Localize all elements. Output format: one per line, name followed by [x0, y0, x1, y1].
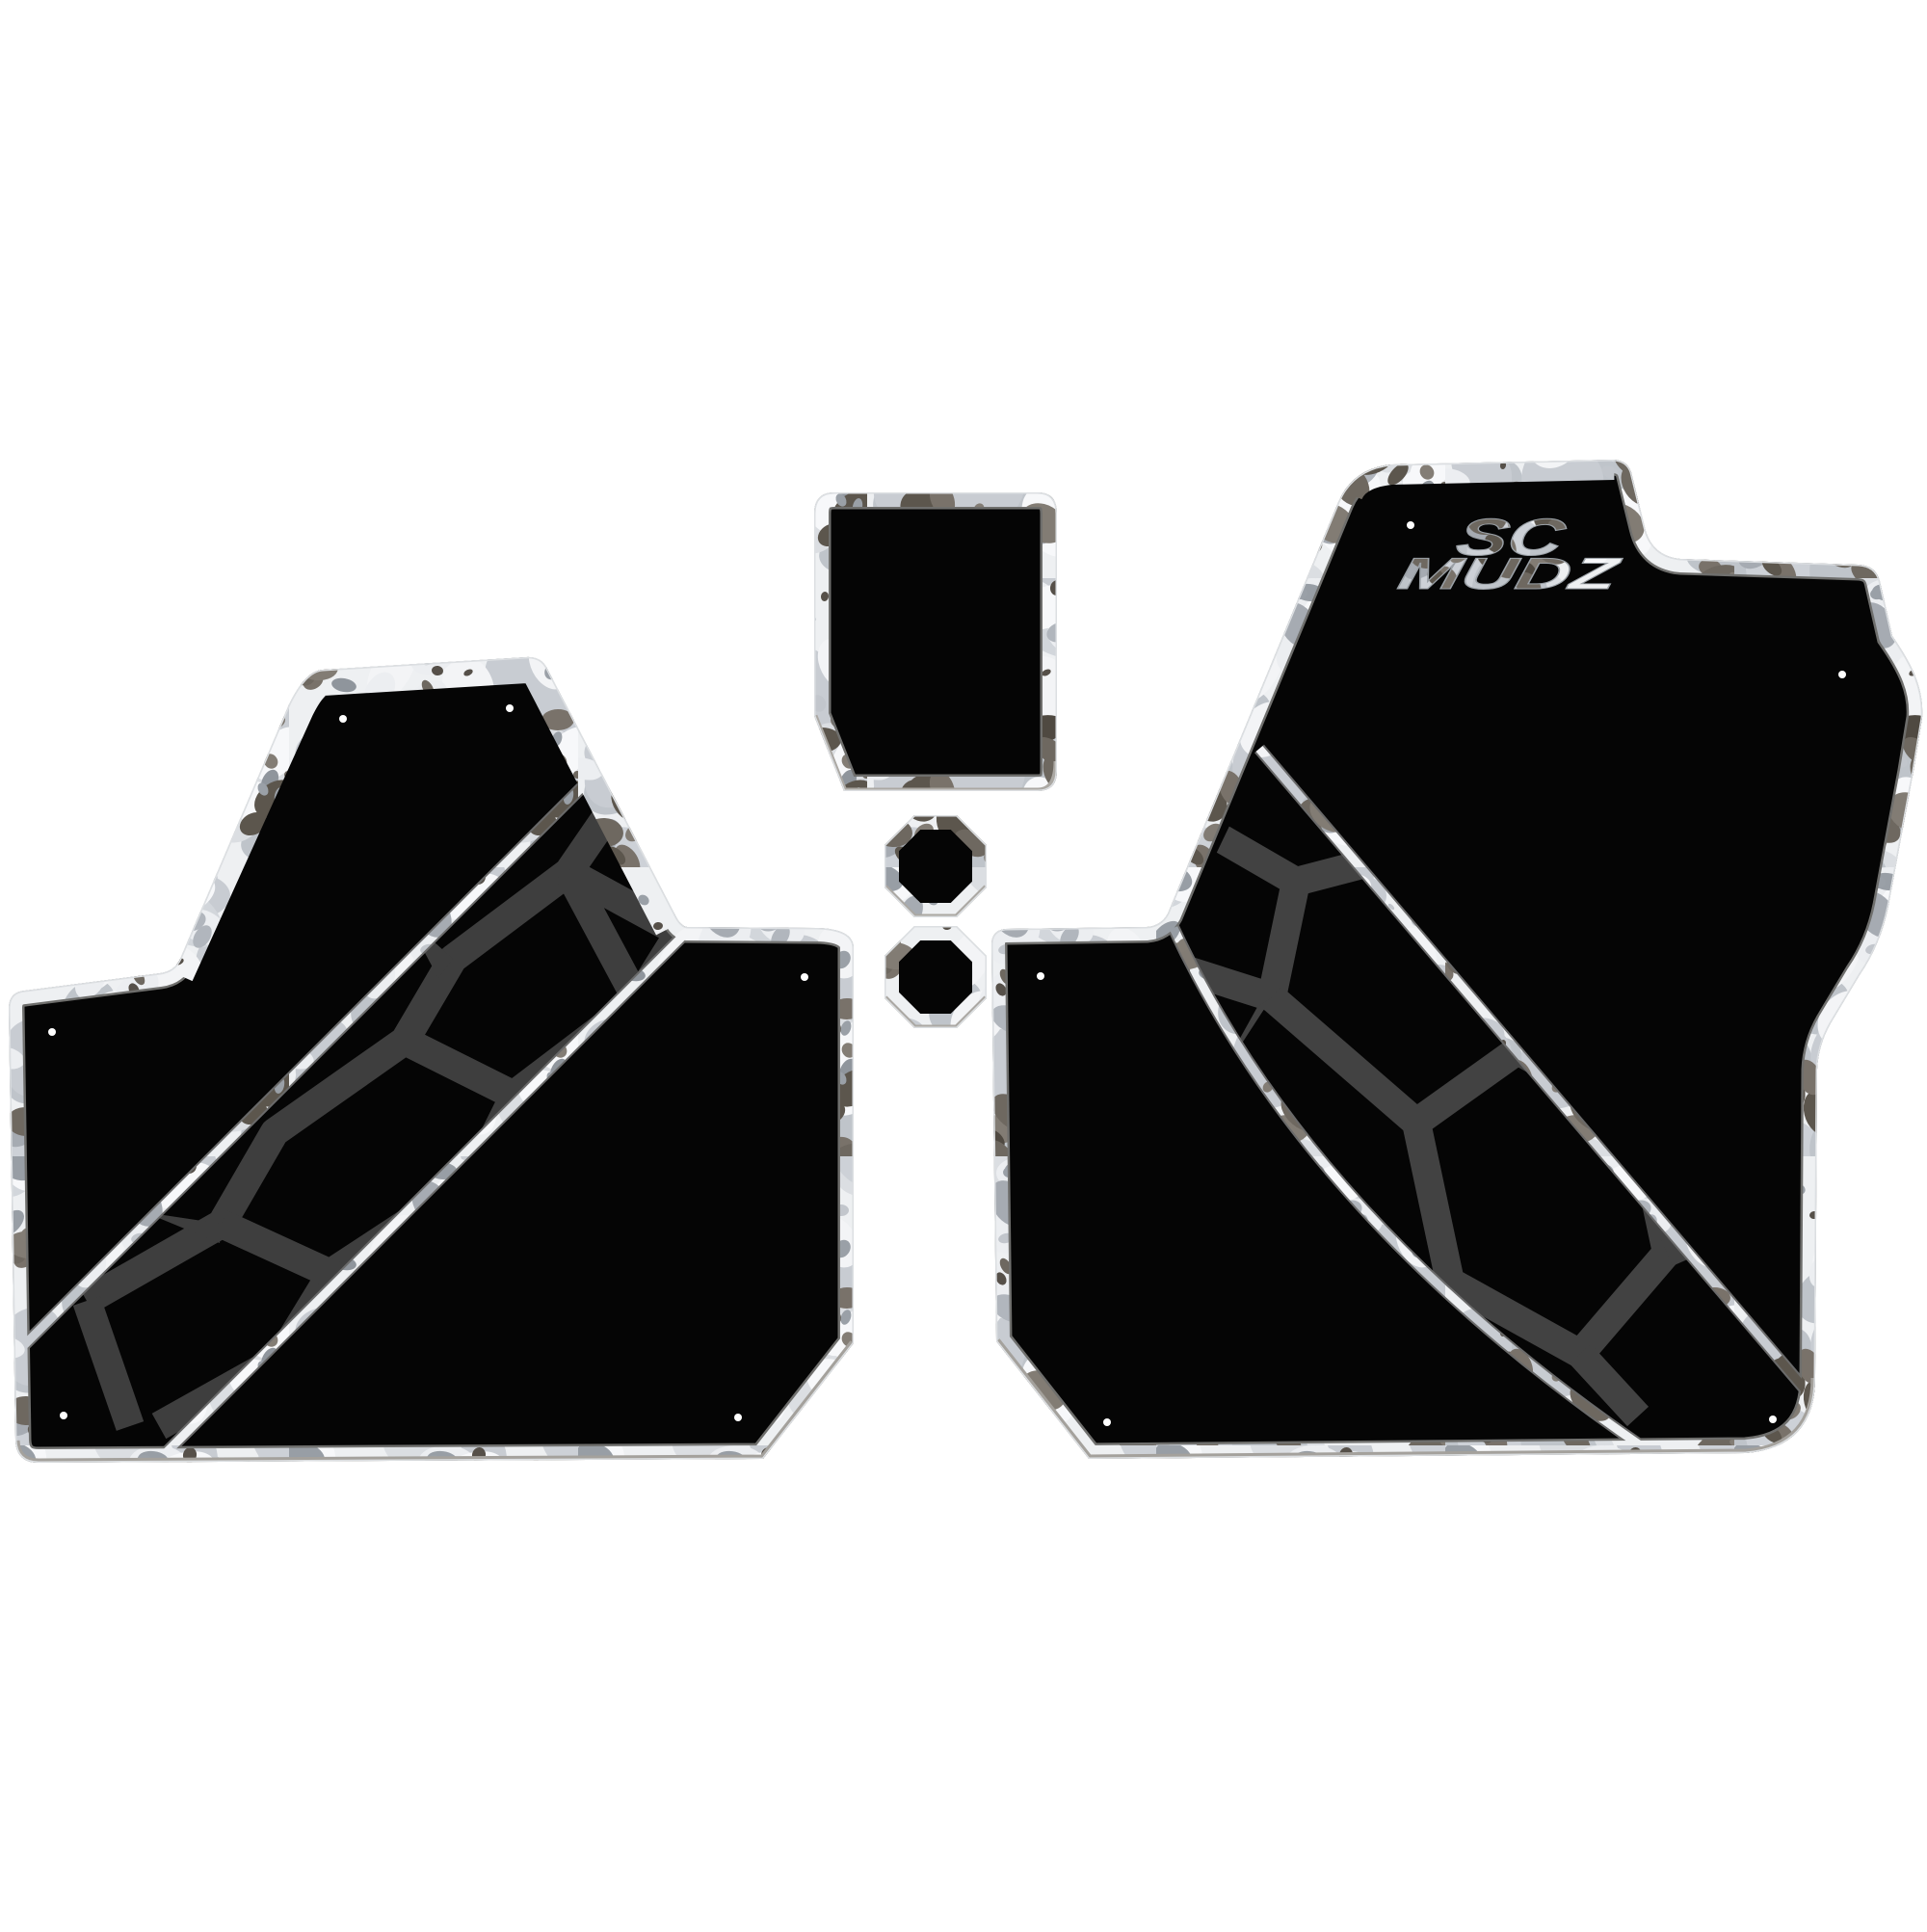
svg-text:MUDZ: MUDZ	[1394, 548, 1625, 597]
